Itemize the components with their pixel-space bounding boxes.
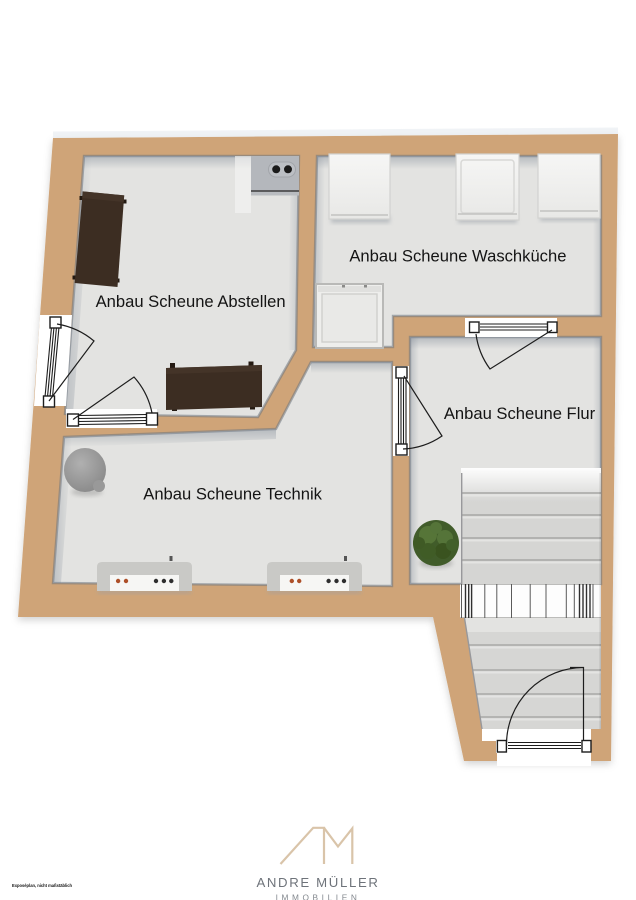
svg-text:Anbau Scheune Waschküche: Anbau Scheune Waschküche xyxy=(349,247,566,266)
svg-text:ANDRE MÜLLER: ANDRE MÜLLER xyxy=(256,875,379,890)
svg-text:Anbau Scheune Abstellen: Anbau Scheune Abstellen xyxy=(96,292,286,311)
svg-text:IMMOBILIEN: IMMOBILIEN xyxy=(276,893,361,900)
svg-text:Exposéplan, nicht maßstäblich: Exposéplan, nicht maßstäblich xyxy=(12,883,73,888)
svg-text:Anbau Scheune Flur: Anbau Scheune Flur xyxy=(444,404,596,423)
svg-text:Anbau Scheune Technik: Anbau Scheune Technik xyxy=(143,485,322,504)
